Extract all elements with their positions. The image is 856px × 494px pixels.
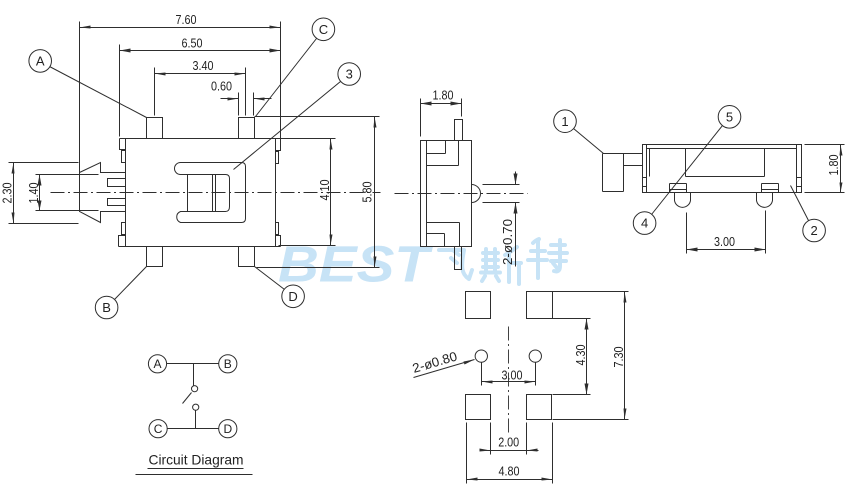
svg-text:D: D	[223, 422, 232, 436]
svg-text:5.80: 5.80	[360, 182, 375, 203]
svg-text:C: C	[154, 422, 163, 436]
svg-text:2: 2	[810, 223, 817, 238]
svg-text:7.30: 7.30	[611, 347, 626, 368]
svg-text:4.30: 4.30	[573, 345, 588, 366]
svg-text:1: 1	[561, 114, 568, 129]
svg-text:4: 4	[641, 216, 648, 231]
svg-text:2-ø0.70: 2-ø0.70	[500, 219, 515, 265]
svg-text:4.80: 4.80	[499, 464, 520, 479]
svg-text:B: B	[102, 300, 111, 315]
svg-text:1.40: 1.40	[26, 183, 41, 204]
svg-text:7.60: 7.60	[176, 12, 197, 27]
svg-text:B: B	[224, 357, 232, 371]
svg-text:Circuit Diagram: Circuit Diagram	[149, 452, 244, 468]
svg-text:1.80: 1.80	[826, 155, 841, 176]
svg-text:A: A	[153, 357, 161, 371]
svg-text:2.30: 2.30	[0, 183, 15, 204]
svg-text:3.40: 3.40	[193, 58, 214, 73]
svg-text:D: D	[288, 289, 297, 304]
svg-text:3.00: 3.00	[714, 234, 735, 249]
svg-text:BEST: BEST	[278, 236, 433, 293]
svg-text:4.10: 4.10	[317, 180, 332, 201]
svg-text:1.80: 1.80	[433, 88, 454, 103]
svg-text:A: A	[36, 54, 45, 69]
svg-text:2.00: 2.00	[498, 434, 519, 449]
svg-text:3: 3	[346, 67, 353, 82]
svg-text:0.60: 0.60	[211, 79, 232, 94]
svg-text:5: 5	[726, 109, 733, 124]
svg-text:3.00: 3.00	[502, 368, 523, 383]
svg-text:6.50: 6.50	[182, 36, 203, 51]
svg-text:C: C	[319, 22, 328, 37]
